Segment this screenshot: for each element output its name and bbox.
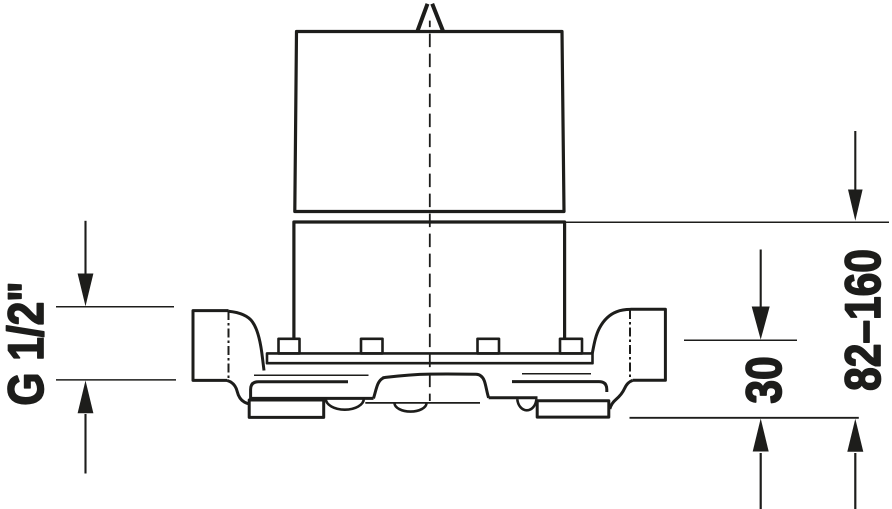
svg-text:G 1/2": G 1/2" <box>0 282 54 406</box>
svg-text:30: 30 <box>736 356 792 403</box>
svg-text:82–160: 82–160 <box>835 249 891 391</box>
